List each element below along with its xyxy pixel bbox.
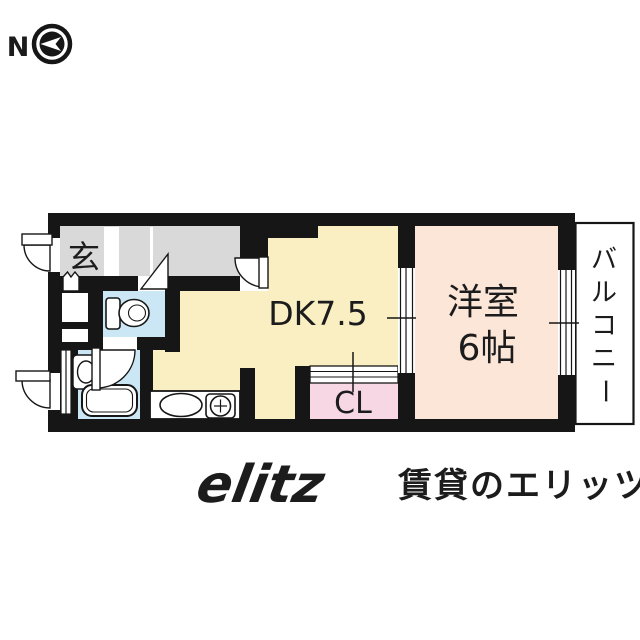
brand-watermark: elitz 賃貸のエリッツ — [192, 454, 640, 515]
entrance-label: 玄 — [68, 238, 100, 276]
wall-segment — [240, 213, 268, 258]
storage-shelf — [62, 329, 88, 342]
wall-segment — [137, 337, 180, 350]
balcony-char: ニ — [591, 344, 617, 374]
door-swing-entrance — [22, 234, 52, 271]
compass-icon: N — [7, 26, 70, 63]
wall-segment — [295, 366, 310, 419]
floorplan-canvas: N — [0, 0, 640, 640]
balcony-char: バ — [591, 245, 617, 275]
wall-segment — [398, 373, 415, 432]
shoe-cabinet — [104, 227, 119, 276]
toilet-icon — [106, 298, 149, 329]
wall-segment — [558, 213, 575, 270]
balcony-char: ル — [591, 278, 617, 308]
dk-floor-lower — [250, 366, 295, 419]
balcony-char: コ — [591, 311, 617, 341]
western-room-label: 洋室 — [447, 282, 519, 323]
gas-stove-icon — [206, 394, 235, 418]
dk-label: DK7.5 — [268, 294, 368, 333]
balcony-label: バ ル コ ニ ー — [589, 245, 619, 404]
kitchen-sink-icon — [160, 394, 202, 417]
wall-segment — [48, 272, 60, 373]
north-label: N — [7, 32, 30, 63]
wall-segment — [268, 226, 318, 238]
balcony-char: ー — [589, 378, 619, 404]
closet-label: CL — [334, 386, 372, 421]
western-room-size-label: 6帖 — [458, 328, 517, 369]
door-swing-lower-left — [16, 371, 50, 408]
wall-segment — [48, 410, 60, 432]
wall-segment — [48, 213, 575, 226]
wall-segment — [558, 375, 575, 432]
wall-segment — [48, 419, 575, 432]
bathtub-icon — [82, 385, 137, 416]
wall-segment — [240, 368, 255, 419]
kitchen-counter — [150, 391, 240, 419]
floorplan-page: N — [0, 0, 640, 640]
brand-text: 賃貸のエリッツ — [397, 466, 640, 506]
wall-segment — [398, 213, 415, 268]
storage-cabinet — [62, 293, 88, 322]
brand-logo: elitz — [192, 454, 329, 515]
entrance-step-line — [150, 227, 153, 276]
